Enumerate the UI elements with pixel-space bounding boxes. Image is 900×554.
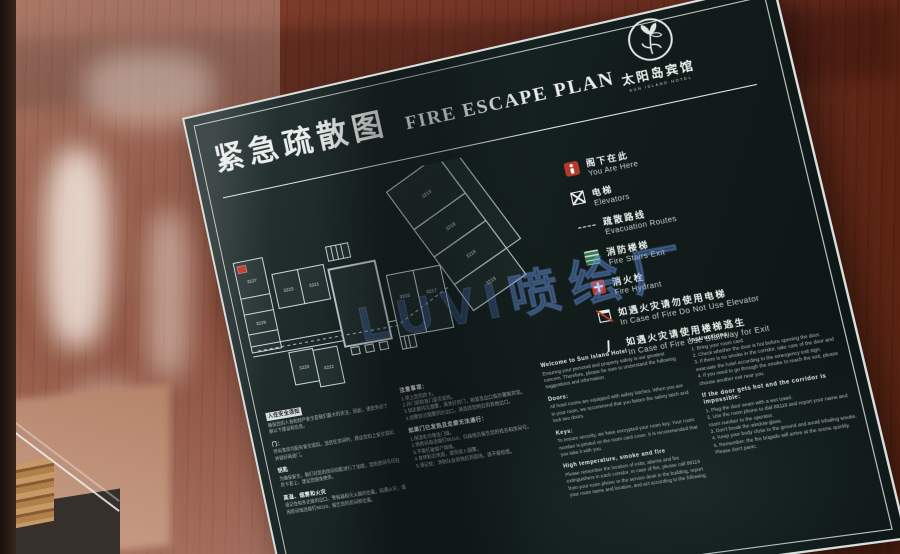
- fire-hydrant-icon: [590, 279, 606, 295]
- route-icon: [578, 224, 596, 228]
- fire-stairs-icon: [584, 249, 601, 265]
- window-reflection: [146, 210, 190, 380]
- note-column: Welcome to Sun Island HotelEnsuring your…: [539, 334, 710, 499]
- title-en: FIRE ESCAPE PLAN: [403, 67, 616, 133]
- photo-stage: 太阳岛宾馆 SUN ISLAND HOTEL 紧急疏散图 FIRE ESCAPE…: [0, 0, 900, 554]
- note-column: 入住安全须知确保您的人身和财产安全是我们最大的关注，因此，请您务必了解以下建议和…: [264, 384, 418, 540]
- window-reflection: [44, 148, 110, 348]
- note-column: 注意事项：1.带上您的房卡。 2.开门前检查门是否发热。 3.如走廊内无烟雾，请…: [398, 360, 560, 521]
- you-are-here-icon: [563, 161, 580, 178]
- you-are-here-marker: [237, 265, 247, 274]
- elevator-icon: [570, 190, 586, 205]
- orchid-sketch-icon: [622, 12, 679, 67]
- doorframe-edge: [0, 0, 16, 554]
- no-elevator-icon: [597, 309, 612, 323]
- note-column: Instructions:1. Bring your room card. 2.…: [687, 307, 867, 477]
- window-reflection: [84, 52, 214, 124]
